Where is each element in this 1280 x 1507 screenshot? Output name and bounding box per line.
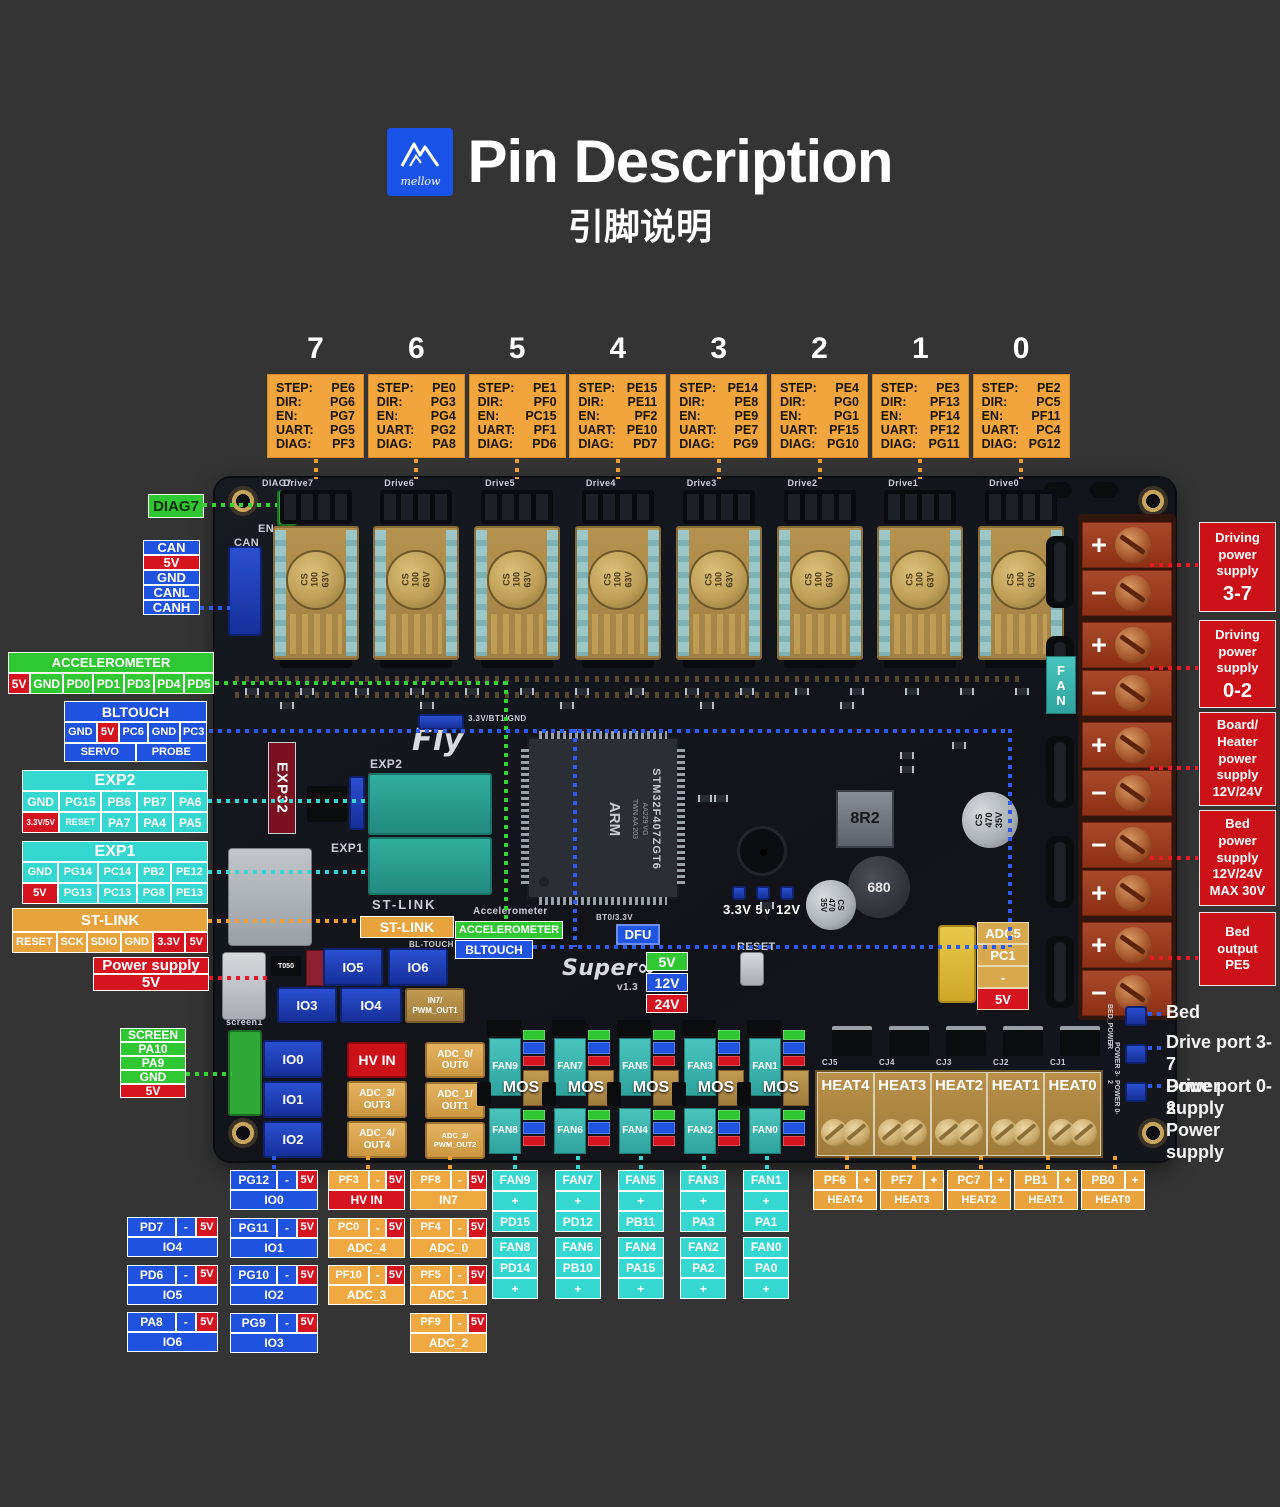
pin-name: 3.3V/5V — [22, 812, 59, 833]
bltouch-pins: GND5VPC6GNDPC3 — [64, 722, 207, 743]
pin-row: PA8-5V — [127, 1312, 218, 1332]
pin-name: FAN9 — [492, 1170, 538, 1191]
pin-name: GND — [22, 791, 59, 812]
port-name: HEAT2 — [947, 1190, 1011, 1210]
callout-line — [702, 1156, 706, 1169]
pin-function: STEP: — [982, 382, 1019, 395]
pin-name: PB7 — [137, 791, 173, 812]
pin-function: EN: — [578, 410, 600, 423]
driver-pin-row: STEP:PE2 — [982, 382, 1061, 395]
led-stack — [523, 1110, 545, 1146]
fuse — [938, 925, 976, 1003]
exp2-row: 3.3V/5VRESETPA7PA4PA5 — [22, 812, 208, 833]
led-stack — [718, 1110, 740, 1146]
driver-pin-row: DIR:PF13 — [881, 396, 960, 409]
pin-name: FAN5 — [618, 1170, 664, 1191]
port-name: IO6 — [127, 1332, 218, 1352]
pin-name: PD14 — [492, 1258, 538, 1279]
drive-socket — [280, 490, 352, 524]
callout-line — [979, 1156, 983, 1169]
driver-capacitor: CS 100 63V — [489, 552, 545, 608]
power-jumper — [1125, 1006, 1147, 1026]
driver-number: 0 — [973, 334, 1070, 364]
callout-text: Driving power supply — [1215, 530, 1260, 581]
pin-function: DIR: — [881, 396, 907, 409]
pin-name: CAN — [143, 540, 200, 555]
port-name: ADC_3 — [328, 1285, 405, 1305]
smd-component — [280, 702, 294, 709]
pin-name: PC13 — [98, 883, 137, 904]
adc-port: ADC_1/ OUT1 — [425, 1082, 485, 1119]
stlink-silk: ST-LINK — [372, 898, 437, 912]
page-subtitle: 引脚说明 — [0, 206, 1280, 249]
driver-pin-row: DIAG:PA8 — [377, 438, 456, 451]
pin-name: PD0 — [63, 673, 93, 694]
polarity-sign: + — [1083, 632, 1115, 659]
pin-table: PG12-5VIO0 — [230, 1170, 318, 1210]
super8-silk: Super∞ — [562, 958, 656, 980]
pin-name: GND — [30, 673, 63, 694]
callout-range: 0-2 — [1223, 681, 1252, 701]
pin-function: DIR: — [679, 396, 705, 409]
pin-function: STEP: — [578, 382, 615, 395]
green-block — [718, 1110, 740, 1120]
port-row: ADC_1 — [410, 1285, 487, 1305]
callout-line — [513, 1156, 517, 1169]
buzzer-hole — [760, 849, 767, 856]
pin-name: FAN7 — [555, 1170, 601, 1191]
callout-line — [504, 681, 508, 924]
mcu-chip: STM32F407ZGT6 AA229 VG TWN AA 203 ARM — [527, 737, 679, 899]
heat-terminal: HEAT2 — [931, 1072, 988, 1156]
pin-name: PB11 — [618, 1211, 664, 1232]
plus-cell: + — [991, 1170, 1011, 1190]
pin-name: PE14 — [728, 382, 759, 395]
callout-line — [366, 1156, 370, 1169]
callout-line — [1019, 459, 1023, 479]
screw-slot — [995, 1123, 1015, 1141]
driver-capacitor: CS 100 63V — [892, 552, 948, 608]
led-5v — [756, 886, 770, 900]
power-terminal: − — [1082, 570, 1172, 616]
chip-marking: STM32F407ZGT6 AA229 VG TWN AA 203 ARM — [543, 759, 663, 879]
adc-port: ADC_2/ PWM_OUT2 — [425, 1122, 485, 1159]
port-name: IO5 — [127, 1285, 218, 1305]
pin-name: PE7 — [735, 424, 759, 437]
port-name: IO2 — [230, 1285, 318, 1305]
pin-name: PC0 — [328, 1218, 369, 1238]
pin-name: PG12 — [1029, 438, 1061, 451]
pin-name: PROBE — [136, 743, 208, 762]
pin-name: PE3 — [936, 382, 960, 395]
pin-function: EN: — [881, 410, 903, 423]
can-callout: CAN5VGNDCANLCANH — [143, 540, 200, 615]
pin-function: DIAG: — [276, 438, 311, 451]
pin-name: + — [618, 1191, 664, 1212]
power-terminal: + — [1082, 922, 1172, 968]
driver-pin-row: DIR:PG3 — [377, 396, 456, 409]
can-port — [228, 546, 262, 636]
pin-name: PE1 — [533, 382, 557, 395]
pin-strip — [749, 530, 760, 656]
pin-strip — [879, 530, 890, 656]
pin-strip — [779, 530, 790, 656]
heater-mosfet — [1003, 1026, 1043, 1056]
stepper-driver-module: CS 100 63V — [373, 526, 459, 660]
polarity-sign: − — [1083, 680, 1115, 707]
led-stack — [718, 1030, 740, 1066]
pin-function: STEP: — [780, 382, 817, 395]
green-block — [523, 1110, 545, 1120]
callout-line — [1148, 1084, 1164, 1088]
pin-name: PE15 — [627, 382, 658, 395]
driver-pin-row: UART:PF12 — [881, 424, 960, 437]
voltage-option: 12V — [646, 973, 688, 992]
callout-line — [573, 729, 577, 947]
pin-name: PA8 — [127, 1312, 176, 1332]
pin1-dot — [539, 877, 549, 887]
pin-name: PE2 — [1037, 382, 1061, 395]
port-row: ADC_2 — [410, 1333, 487, 1353]
port-name: ADC_4 — [328, 1238, 405, 1258]
pin-function: DIR: — [478, 396, 504, 409]
red-block — [783, 1136, 805, 1146]
red-block — [588, 1136, 610, 1146]
screw-slot — [1052, 1123, 1072, 1141]
power-jumper — [1125, 1082, 1147, 1102]
port-name: HEAT4 — [813, 1190, 877, 1210]
pin-name: PF1 — [534, 424, 557, 437]
pin-name: PG5 — [330, 424, 355, 437]
version-silk: v1.3 — [617, 982, 638, 993]
smd-component — [300, 688, 314, 695]
pin-name: PE4 — [835, 382, 859, 395]
screw-slot — [1119, 734, 1146, 755]
pin-table: PF10-5VADC_3 — [328, 1265, 405, 1305]
pin-name: PG14 — [58, 862, 98, 883]
heat-terminal: HEAT0 — [1044, 1072, 1101, 1156]
pin-function: DIAG: — [982, 438, 1017, 451]
smd-component — [575, 688, 589, 695]
voltage-cell: 5V — [468, 1170, 487, 1190]
polarity-sign: − — [1083, 780, 1115, 807]
pin-strip — [446, 530, 457, 656]
port-note: Drive port 0-2 Power supply — [1166, 1076, 1280, 1164]
power-terminal: − — [1082, 822, 1172, 868]
pin-name: PF7 — [880, 1170, 924, 1190]
accelerometer-title: ACCELEROMETER — [8, 652, 214, 673]
pin-name: FAN2 — [680, 1237, 726, 1258]
pin-name: PA8 — [432, 438, 455, 451]
pin-name: 5V — [97, 722, 119, 743]
driver-pin-row: STEP:PE6 — [276, 382, 355, 395]
accelerometer-pins: 5VGNDPD0PD1PD3PD4PD5 — [8, 673, 214, 694]
driver-pin-row: EN:PF14 — [881, 410, 960, 423]
pin-name: PA15 — [618, 1258, 664, 1279]
pin-function: UART: — [578, 424, 616, 437]
pin-name: PC7 — [947, 1170, 991, 1190]
pin-name: + — [680, 1191, 726, 1212]
pin-name: PG13 — [58, 883, 98, 904]
port-name: ADC_1 — [410, 1285, 487, 1305]
pin-name: PF3 — [332, 438, 355, 451]
callout-line — [1113, 1156, 1117, 1169]
pin-name: PA4 — [137, 812, 173, 833]
mosfet-chip — [552, 1020, 586, 1036]
socket-slots — [586, 494, 650, 520]
voltage-cell: 5V — [196, 1312, 218, 1332]
callout-text: Bed power supply 12V/24V MAX 30V — [1210, 816, 1266, 900]
screw-slot — [1119, 534, 1146, 555]
socket-slots — [687, 494, 751, 520]
callout-line — [918, 459, 922, 479]
dash-cell: - — [277, 1265, 296, 1285]
component — [306, 950, 324, 986]
smd-component — [900, 752, 914, 759]
port-note: Bed — [1166, 1002, 1200, 1024]
power-terminal: + — [1082, 870, 1172, 916]
capacitor-label: CS 100 63V — [300, 572, 331, 588]
callout-line — [1150, 856, 1198, 860]
callout-line — [717, 459, 721, 479]
pin-name: PC15 — [525, 410, 556, 423]
heater-mosfet — [946, 1026, 986, 1056]
driver-pin-row: EN:PC15 — [478, 410, 557, 423]
pin-name: PG4 — [431, 410, 456, 423]
driver-capacitor: CS 100 63V — [590, 552, 646, 608]
pin-name: PF13 — [930, 396, 960, 409]
smd-component — [465, 688, 479, 695]
driver-pin-row: DIAG:PD7 — [578, 438, 657, 451]
pin-row: PF9-5V — [410, 1313, 487, 1333]
callout-line — [533, 945, 1010, 949]
inductor-8r2: 8R2 — [836, 790, 894, 848]
mosfet-chip — [487, 1020, 521, 1036]
capacitor-label: CS 100 63V — [905, 572, 936, 588]
driver-pin-row: DIAG:PF3 — [276, 438, 355, 451]
blue-block — [783, 1122, 805, 1134]
callout-line — [1148, 1046, 1164, 1050]
drive-socket — [884, 490, 956, 524]
driver-pin-table: STEP:PE15DIR:PE11EN:PF2UART:PE10DIAG:PD7 — [569, 374, 666, 458]
adc5-cell: 5V — [977, 988, 1029, 1010]
pin-name: PD15 — [492, 1211, 538, 1232]
smd-component — [520, 688, 534, 695]
driver-capacitor: CS 100 63V — [792, 552, 848, 608]
stepper-driver-module: CS 100 63V — [474, 526, 560, 660]
led-stack — [653, 1110, 675, 1146]
drive-socket-silk: Drive5 — [485, 479, 515, 489]
smd-component — [1015, 688, 1029, 695]
callout-line — [215, 681, 506, 685]
pin-name: RESET — [12, 932, 57, 953]
terminal-screw — [1115, 927, 1151, 963]
pin-function: DIAG: — [478, 438, 513, 451]
power-terminal: + — [1082, 622, 1172, 668]
pin-row: PG11-5V — [230, 1218, 318, 1238]
pin-name: PG12 — [230, 1170, 277, 1190]
driver-pin-row: EN:PG4 — [377, 410, 456, 423]
pin-name: GND — [148, 722, 181, 743]
pad-grid — [995, 614, 1047, 654]
smd-component — [795, 688, 809, 695]
pin-name: PF6 — [813, 1170, 857, 1190]
pin-name: PF11 — [1031, 410, 1060, 423]
callout-line — [845, 1156, 849, 1169]
callout-line — [314, 459, 318, 479]
heat-pin-table: PF6+HEAT4 — [813, 1170, 877, 1210]
mosfet-chip — [617, 1020, 651, 1036]
capacitor-label: CS 100 63V — [401, 572, 432, 588]
pin-function: DIAG: — [377, 438, 412, 451]
port-name: IN7 — [410, 1190, 487, 1210]
green-block — [588, 1110, 610, 1120]
pin-name: PD7 — [633, 438, 657, 451]
pin-table: PG10-5VIO2 — [230, 1265, 318, 1305]
driver-number: 1 — [872, 334, 969, 364]
pin-name: PF5 — [410, 1265, 451, 1285]
screw-slot — [1119, 982, 1146, 1003]
jumper-silk: 3.3V/BT1/GND — [468, 715, 527, 724]
pin-name: PA9 — [120, 1056, 186, 1070]
callout-line — [414, 459, 418, 479]
capacitor-label: CS 100 63V — [1006, 572, 1037, 588]
socket-slots — [485, 494, 549, 520]
callout-line — [186, 1072, 232, 1076]
driver-pin-row: UART:PG5 — [276, 424, 355, 437]
adc-port: ADC_0/ OUT0 — [425, 1042, 485, 1078]
mount-hole — [1138, 486, 1168, 516]
green-block — [718, 1030, 740, 1040]
heat-pin-table: PC7+HEAT2 — [947, 1170, 1011, 1210]
pin-row: PC7+ — [947, 1170, 1011, 1190]
fan-pin-table: FAN6PB10+ — [555, 1237, 601, 1299]
led-stack — [588, 1030, 610, 1066]
pin-function: DIR: — [276, 396, 302, 409]
callout-line — [1046, 1156, 1050, 1169]
screw-slot — [1119, 882, 1146, 903]
pin-name: PG11 — [929, 438, 960, 451]
pin-function: UART: — [679, 424, 717, 437]
power-connector — [1046, 536, 1074, 608]
port-row: IO4 — [127, 1237, 218, 1257]
pin-function: STEP: — [276, 382, 313, 395]
in7-pwm-out1-port: IN7/ PWM_OUT1 — [405, 988, 465, 1023]
voltage-cell: 5V — [386, 1265, 405, 1285]
drive-socket-silk: Drive4 — [586, 479, 616, 489]
polarity-sign: + — [1083, 532, 1115, 559]
fan-pin-table: FAN4PA15+ — [618, 1237, 664, 1299]
buzzer — [737, 826, 787, 876]
pin-name: FAN3 — [680, 1170, 726, 1191]
voltage-cell: 5V — [386, 1218, 405, 1238]
fan-pin-table: FAN1+PA1 — [743, 1170, 789, 1232]
red-block — [653, 1056, 675, 1066]
green-block — [523, 1030, 545, 1040]
pin-name: PG9 — [230, 1313, 277, 1333]
pin-function: UART: — [377, 424, 415, 437]
callout-line — [765, 1156, 769, 1169]
socket-slots — [788, 494, 852, 520]
dash-cell: - — [451, 1313, 468, 1333]
pin-table: PG9-5VIO3 — [230, 1313, 318, 1353]
pin-name: SCK — [57, 932, 88, 953]
green-block — [653, 1030, 675, 1040]
screw-slot — [1119, 682, 1146, 703]
heat-pin-table: PB1+HEAT1 — [1014, 1170, 1078, 1210]
mellow-logo-icon: mellow — [387, 128, 453, 196]
smd-component — [900, 766, 914, 773]
polarity-sign: + — [1083, 732, 1115, 759]
callout-line — [576, 1156, 580, 1169]
screw-slot — [938, 1123, 958, 1141]
chip-lot-code: AA229 VG TWN AA 203 — [629, 759, 649, 879]
pin-function: EN: — [679, 410, 701, 423]
port-row: IO2 — [230, 1285, 318, 1305]
exp1-title: EXP1 — [22, 841, 208, 862]
driver-pin-row: STEP:PE14 — [679, 382, 758, 395]
diag7-silk: DIAG7 — [262, 479, 292, 489]
pin-table: PC0-5VADC_4 — [328, 1218, 405, 1258]
dash-cell: - — [451, 1265, 468, 1285]
driver-pin-row: DIR:PG6 — [276, 396, 355, 409]
callout-line — [616, 459, 620, 479]
jumper-block — [349, 776, 365, 830]
bed-power-silk: BED_POWER — [1106, 1004, 1113, 1040]
diag7-callout: DIAG7 — [148, 494, 204, 518]
heat-silk: CJ1 — [1050, 1059, 1066, 1068]
chip-pins — [539, 897, 667, 905]
exp1-row: 5VPG13PC13PG8PE13 — [22, 883, 208, 904]
pin-row: PD6-5V — [127, 1265, 218, 1285]
callout-text: Driving power supply — [1215, 627, 1260, 678]
fan-pin-table: FAN9+PD15 — [492, 1170, 538, 1232]
smd-component — [560, 702, 574, 709]
driver-pin-row: EN:PF11 — [982, 410, 1061, 423]
pin-function: DIAG: — [881, 438, 916, 451]
pin-row: PD7-5V — [127, 1217, 218, 1237]
pin-strip — [950, 530, 961, 656]
screw-slot — [1119, 834, 1146, 855]
smd-component — [960, 688, 974, 695]
pad-grid — [290, 614, 342, 654]
smd-component — [760, 902, 774, 909]
screw-slot — [1119, 934, 1146, 955]
socket-slots — [384, 494, 448, 520]
chip-pins — [521, 749, 529, 887]
bed-power-silk: POWER 0-2 — [1106, 1080, 1120, 1116]
bltouch-title: BLTOUCH — [64, 701, 207, 722]
pin-name: PG6 — [330, 396, 355, 409]
pin-row: PB0+ — [1081, 1170, 1145, 1190]
fan-pin-table: FAN0PA0+ — [743, 1237, 789, 1299]
usb-c-port — [222, 952, 266, 1020]
port-name: IO0 — [230, 1190, 318, 1210]
dash-cell: - — [277, 1218, 296, 1238]
pad-grid — [794, 614, 846, 654]
pin-name: PE0 — [432, 382, 456, 395]
power-terminal: + — [1082, 522, 1172, 568]
pin-name: 3.3V — [153, 932, 185, 953]
callout-range: 3-7 — [1223, 584, 1252, 604]
stepper-driver-module: CS 100 63V — [777, 526, 863, 660]
pad-grid — [390, 614, 442, 654]
io-port-io6: IO6 — [388, 948, 448, 986]
adc-port: ADC_4/ OUT4 — [347, 1121, 407, 1158]
red-block — [588, 1056, 610, 1066]
pin-row: PC0-5V — [328, 1218, 405, 1238]
callout-line — [208, 870, 368, 874]
